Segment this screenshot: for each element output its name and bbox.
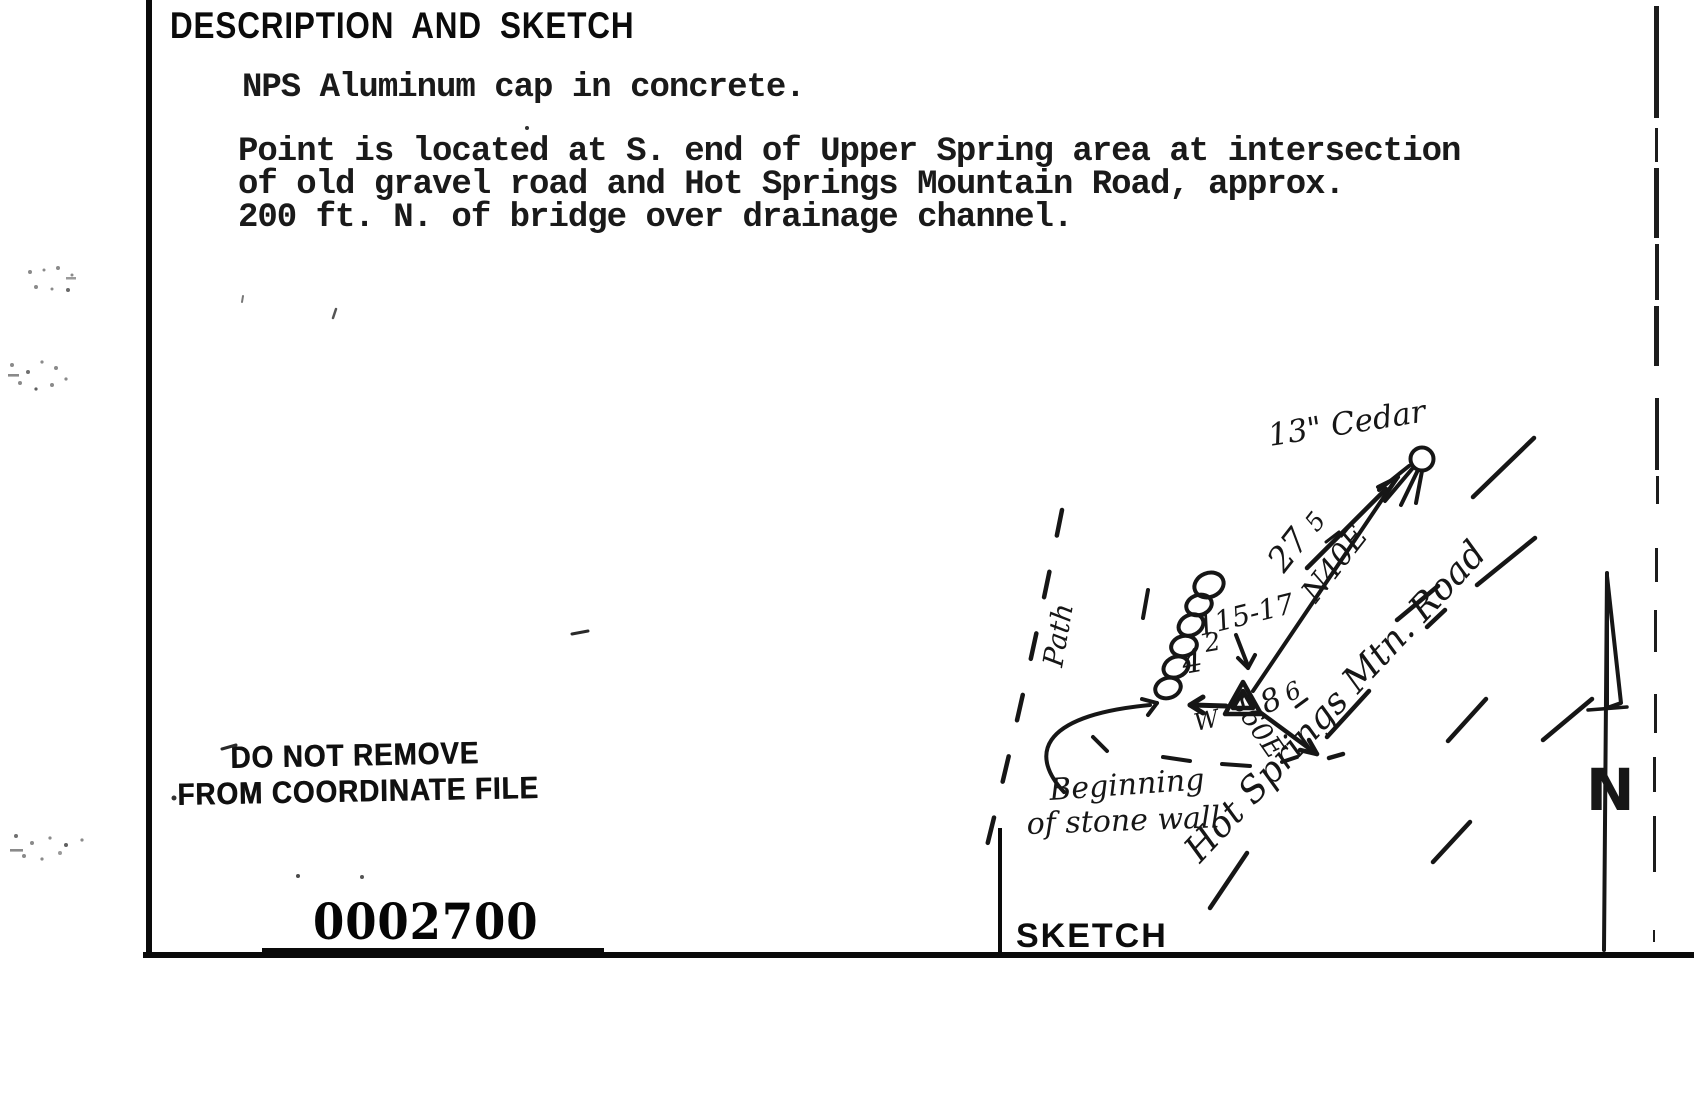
stray-ink-marks xyxy=(222,296,588,749)
sketch-drawing: 13" Cedar 27 5 N40E Path 115-17 4 2 W 8 … xyxy=(0,0,1696,1099)
cedar-label: 13" Cedar xyxy=(1266,393,1431,454)
wall-tie-bearing: W xyxy=(1191,704,1223,737)
north-arrow-letter: N xyxy=(1586,756,1635,824)
road-tie-distance-tenths: 6 xyxy=(1280,676,1305,708)
scan-noise-specks xyxy=(8,126,529,879)
down-arrow xyxy=(1236,635,1255,668)
cedar-tie-distance-tenths: 5 xyxy=(1299,506,1332,536)
handwritten-labels: 13" Cedar 27 5 N40E Path 115-17 4 2 W 8 … xyxy=(1026,393,1634,871)
path-label: Path xyxy=(1036,601,1080,670)
cedar-tree-symbol xyxy=(1379,448,1434,506)
cedar-tie-bearing: N40E xyxy=(1294,519,1375,609)
stray-pen-dash xyxy=(1143,590,1148,618)
scanned-datasheet-page: DESCRIPTION AND SKETCH NPS Aluminum cap … xyxy=(0,0,1696,1099)
